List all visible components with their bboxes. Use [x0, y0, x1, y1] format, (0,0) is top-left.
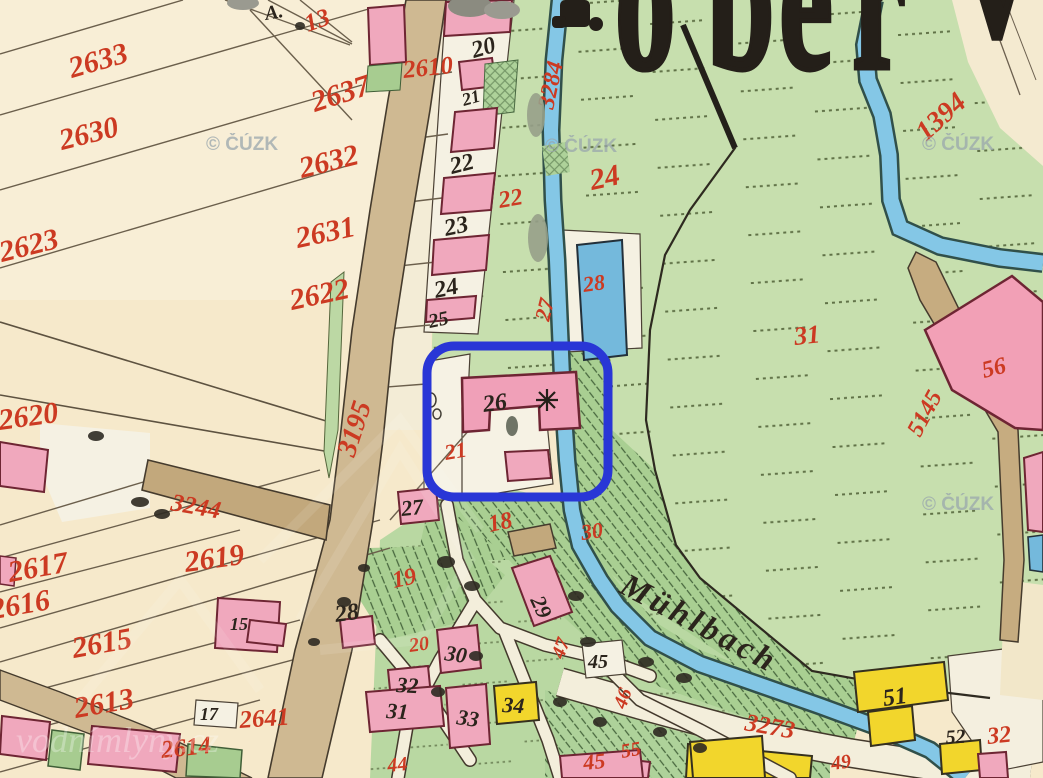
svg-text:31: 31	[385, 698, 409, 724]
svg-text:b: b	[707, 0, 775, 114]
svg-text:© ČÚZK: © ČÚZK	[206, 133, 278, 155]
svg-text:45: 45	[587, 651, 608, 673]
svg-text:vodnímlyny.cz: vodnímlyny.cz	[16, 720, 219, 760]
svg-text:30: 30	[442, 640, 468, 668]
svg-text:21: 21	[442, 436, 469, 465]
svg-text:32: 32	[395, 672, 419, 698]
svg-text:32: 32	[985, 722, 1013, 750]
svg-text:44: 44	[385, 753, 408, 777]
svg-text:V: V	[950, 0, 1043, 77]
svg-text:31: 31	[792, 319, 822, 351]
svg-text:e: e	[779, 0, 833, 114]
svg-text:45: 45	[581, 748, 606, 775]
svg-text:25: 25	[425, 307, 450, 333]
svg-text:55: 55	[619, 738, 643, 763]
svg-text:r: r	[852, 0, 906, 114]
svg-text:2641: 2641	[238, 704, 291, 734]
svg-text:34: 34	[501, 692, 525, 718]
svg-text:© ČÚZK: © ČÚZK	[922, 133, 994, 155]
svg-text:2610: 2610	[401, 52, 455, 84]
svg-text:o: o	[615, 0, 676, 114]
svg-text:27: 27	[399, 494, 425, 521]
svg-text:28: 28	[580, 269, 606, 297]
svg-text:22: 22	[496, 184, 525, 214]
svg-text:© ČÚZK: © ČÚZK	[545, 135, 617, 157]
svg-text:26: 26	[480, 389, 508, 418]
svg-text:24: 24	[431, 273, 461, 304]
svg-text:52: 52	[945, 726, 966, 749]
svg-text:15: 15	[230, 614, 248, 634]
svg-text:49: 49	[829, 750, 853, 775]
svg-text:51: 51	[881, 683, 908, 712]
svg-text:30: 30	[578, 517, 604, 545]
svg-text:23: 23	[441, 211, 471, 242]
svg-text:33: 33	[454, 704, 480, 732]
svg-text:© ČÚZK: © ČÚZK	[922, 493, 994, 515]
